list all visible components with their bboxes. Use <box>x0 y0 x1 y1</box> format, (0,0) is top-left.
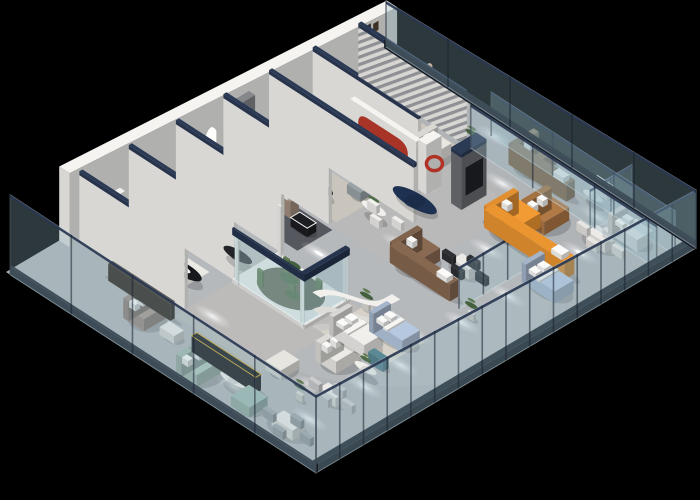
showroom-render <box>0 0 700 500</box>
showroom-scene <box>0 0 700 500</box>
red-ring-wall <box>418 131 442 195</box>
